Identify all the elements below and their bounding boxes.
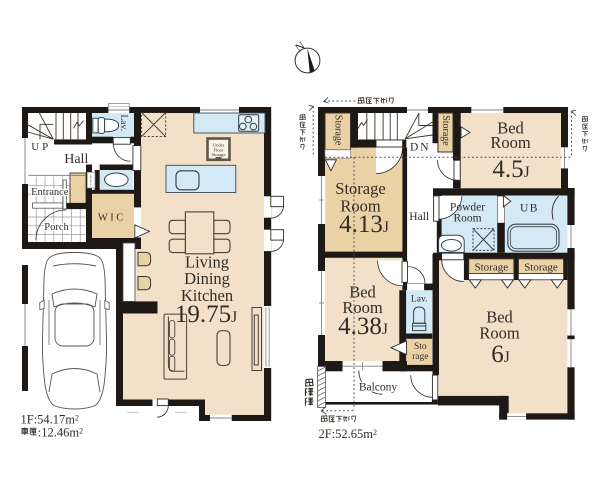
svg-text:1F:54.17m2: 1F:54.17m2 xyxy=(21,412,80,426)
svg-text:Storage: Storage xyxy=(211,152,225,157)
svg-text:Lav.: Lav. xyxy=(411,295,428,305)
svg-text:Balcony: Balcony xyxy=(359,381,398,393)
svg-text:Room: Room xyxy=(490,133,531,152)
svg-text:Storage: Storage xyxy=(440,115,451,146)
svg-text:Room: Room xyxy=(479,324,520,343)
svg-text:2F:52.65m2: 2F:52.65m2 xyxy=(319,427,378,441)
svg-text:Storage: Storage xyxy=(335,179,385,198)
svg-text:WIC: WIC xyxy=(98,213,126,224)
svg-text:Room: Room xyxy=(453,213,481,225)
svg-text:4.13J: 4.13J xyxy=(339,211,389,238)
svg-text:UP: UP xyxy=(31,141,51,153)
svg-text:UB: UB xyxy=(520,203,539,215)
svg-text:Storage: Storage xyxy=(524,262,558,274)
svg-text:rage: rage xyxy=(412,352,428,362)
svg-text:Entrance: Entrance xyxy=(31,187,69,198)
svg-text:Hall: Hall xyxy=(409,211,429,223)
svg-text:Lav.: Lav. xyxy=(118,115,128,132)
svg-text:Sto: Sto xyxy=(414,342,427,352)
svg-text:DN: DN xyxy=(410,142,431,154)
svg-text:19.75J: 19.75J xyxy=(175,301,237,328)
svg-text:4.38J: 4.38J xyxy=(338,313,388,340)
svg-text::12.46m2: :12.46m2 xyxy=(38,425,83,439)
svg-text:Storage: Storage xyxy=(474,262,508,274)
svg-text:Hall: Hall xyxy=(64,152,88,167)
svg-text:Porch: Porch xyxy=(44,222,69,233)
svg-text:Storage: Storage xyxy=(332,115,343,146)
